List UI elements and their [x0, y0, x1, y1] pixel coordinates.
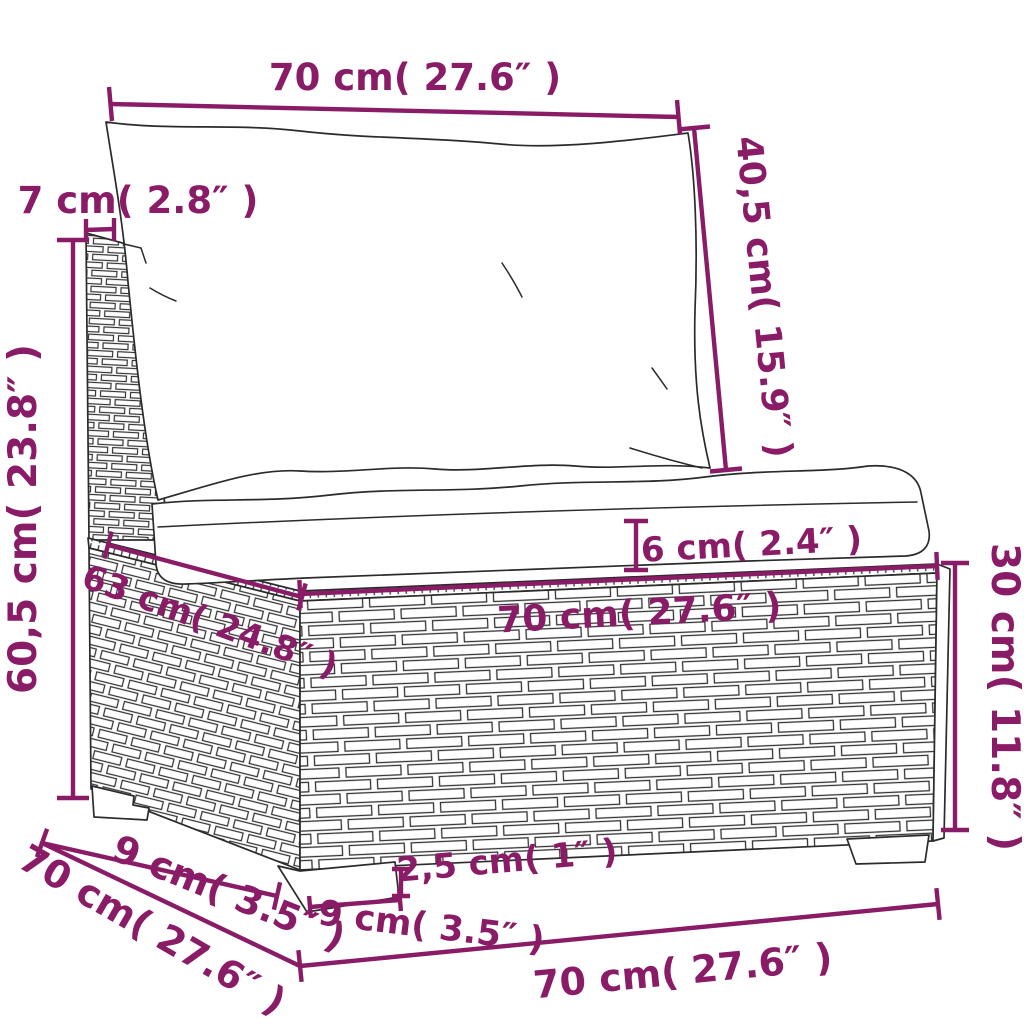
- dim-label-top-width: 70 cm( 27.6″ ): [269, 56, 561, 99]
- foot-front-right: [847, 835, 929, 864]
- dim-label-base-height: 30 cm( 11.8″ ): [982, 543, 1024, 851]
- sofa-drawing: [86, 122, 950, 912]
- dim-label-back-panel-thickness: 7 cm( 2.8″ ): [18, 179, 259, 222]
- dim-label-base-width: 70 cm( 27.6″ ): [531, 935, 834, 1008]
- dim-label-total-height: 60,5 cm( 23.8″ ): [1, 344, 46, 694]
- dimension-base-height: 30 cm( 11.8″ ): [941, 543, 1024, 851]
- sofa-dimension-drawing: 70 cm( 27.6″ ) 7 cm( 2.8″ ) 40,5 cm( 15.…: [0, 0, 1024, 1024]
- dimension-total-height: 60,5 cm( 23.8″ ): [1, 240, 89, 798]
- dimension-foot-width: 9 cm( 3.5″ ): [309, 889, 547, 961]
- dim-label-back-cushion-height: 40,5 cm( 15.9″ ): [727, 134, 799, 460]
- dimension-diagram: 70 cm( 27.6″ ) 7 cm( 2.8″ ) 40,5 cm( 15.…: [0, 0, 1024, 1024]
- dimension-top-width: 70 cm( 27.6″ ): [109, 56, 680, 134]
- dim-label-foot-width: 9 cm( 3.5″ ): [316, 893, 547, 960]
